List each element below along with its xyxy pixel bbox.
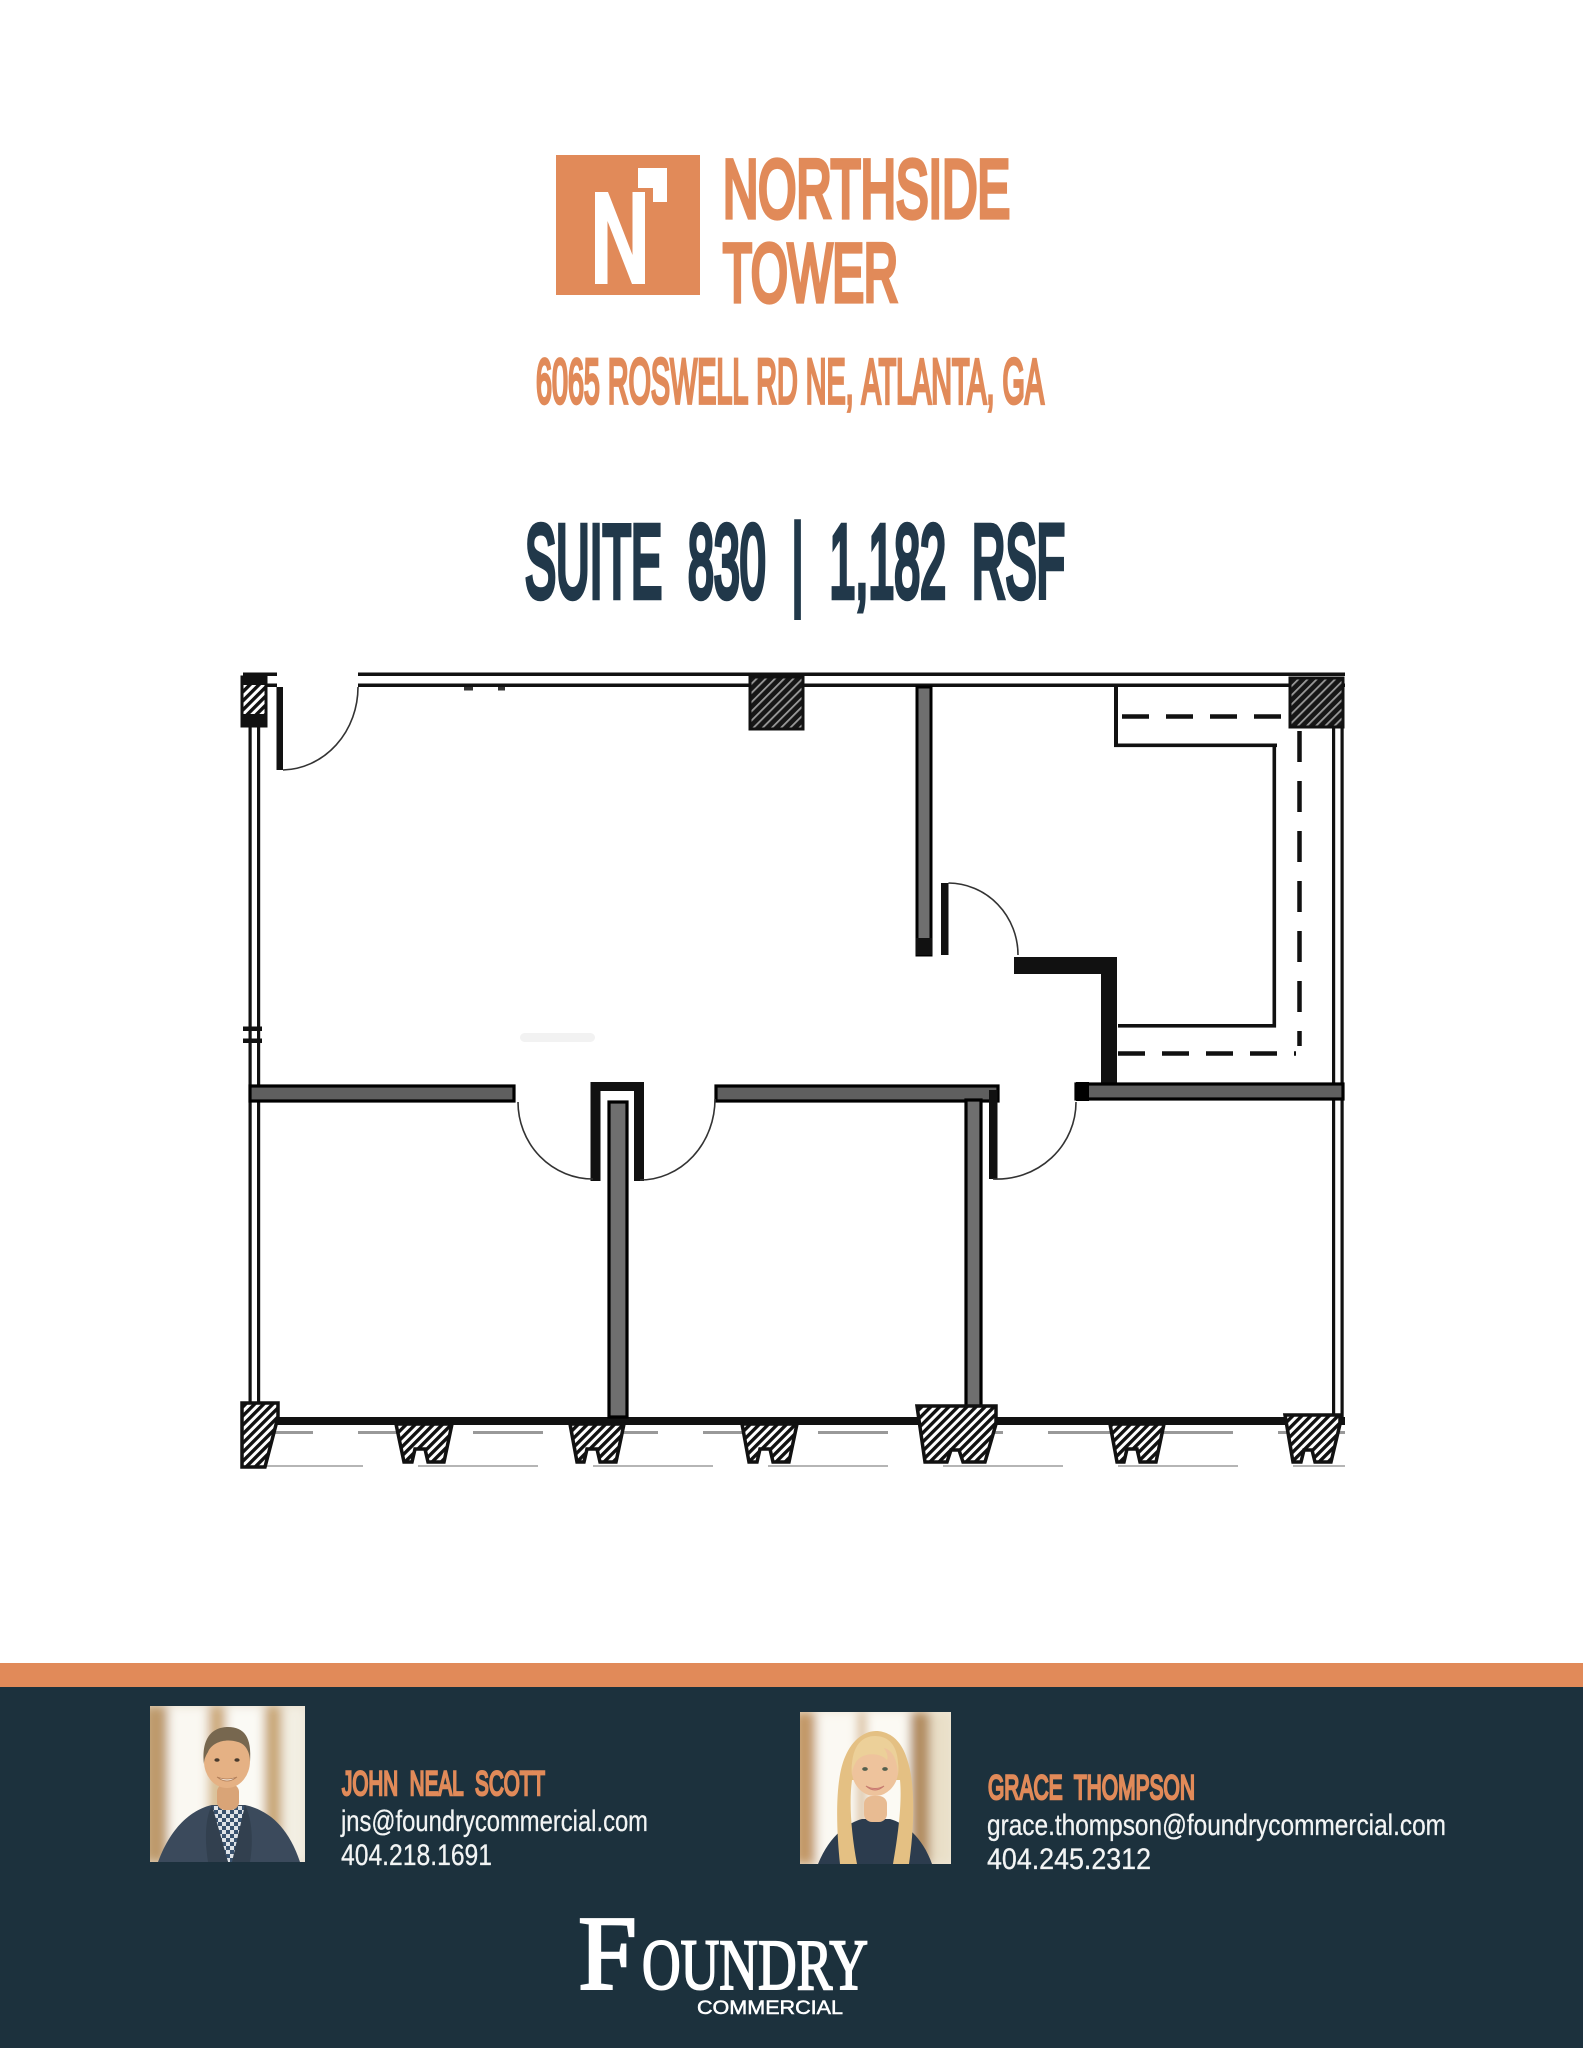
svg-text:OUNDRY: OUNDRY — [642, 1925, 868, 2005]
svg-text:404.245.2312: 404.245.2312 — [987, 1843, 1151, 1876]
svg-text:TOWER: TOWER — [723, 228, 898, 314]
svg-text:COMMERCIAL: COMMERCIAL — [697, 1998, 843, 2019]
svg-text:SUITE 830 | 1,182 RSF: SUITE 830 | 1,182 RSF — [525, 504, 1065, 619]
svg-text:404.218.1691: 404.218.1691 — [341, 1839, 492, 1872]
svg-text:6065 ROSWELL RD NE, ATLANTA, G: 6065 ROSWELL RD NE, ATLANTA, GA — [536, 347, 1044, 417]
svg-text:F: F — [578, 1900, 637, 2012]
